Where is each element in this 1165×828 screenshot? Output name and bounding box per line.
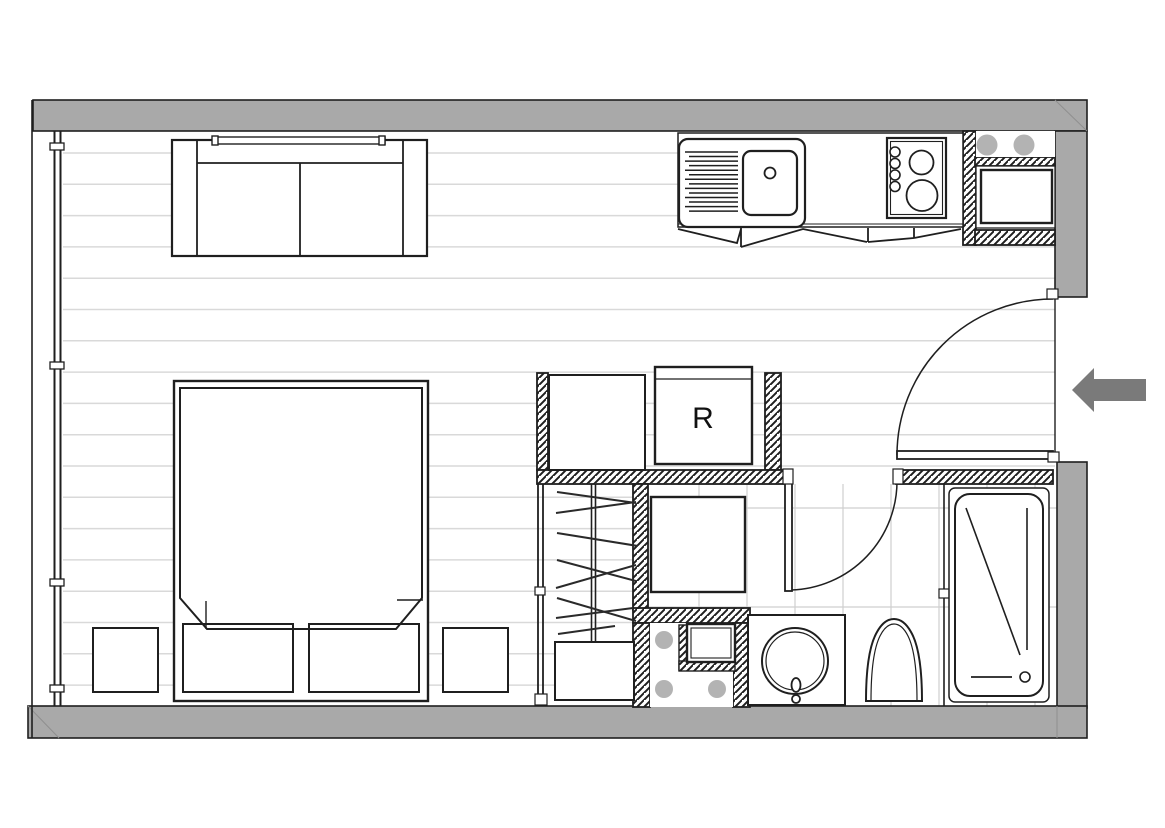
bed — [174, 381, 428, 701]
duvet — [180, 388, 422, 629]
sink-bowl — [743, 151, 797, 215]
refrigerator-label: R — [692, 402, 714, 435]
hob-burner-large — [907, 180, 938, 211]
shelf-bar — [213, 137, 385, 144]
floor-plan: R — [0, 0, 1165, 828]
entry-door-leaf — [897, 451, 1053, 459]
basin-faucet-knob — [792, 695, 800, 703]
bottom-wall — [28, 706, 1087, 738]
sink-drain — [765, 168, 776, 179]
bathroom-door-jamb-right — [893, 469, 903, 484]
washbasin — [748, 615, 845, 705]
sofa — [172, 140, 427, 256]
pipe-dot-2 — [655, 680, 673, 698]
basin-faucet — [792, 678, 801, 692]
bathroom-door-jamb-left — [783, 469, 793, 484]
midblock-wall-left — [537, 373, 548, 470]
wardrobe — [535, 484, 638, 706]
bathroom-top-wall-right — [896, 470, 1053, 484]
shaft-top-wall — [633, 608, 750, 623]
hangers — [556, 492, 638, 634]
midblock-wall-right — [765, 373, 781, 470]
floor-plan-canvas: R — [0, 0, 1165, 828]
cabinet — [549, 375, 645, 470]
right-wall-lower — [1057, 462, 1087, 708]
wardrobe-wall-joint — [535, 587, 545, 595]
duct-box-inner — [691, 628, 731, 658]
bathtub-rim — [955, 494, 1043, 696]
pipe-dot-3 — [708, 680, 726, 698]
kitchen-corner-wall-vertical — [963, 131, 976, 245]
kitchen-corner-wall-bottom — [975, 230, 1055, 245]
wardrobe-foot-joint — [535, 694, 547, 705]
appliance-dot-1 — [977, 135, 998, 156]
window-joints — [50, 143, 64, 692]
entry-door-arc — [897, 299, 1053, 455]
mid-block: R — [549, 367, 752, 470]
entry-door-jamb-top — [1047, 289, 1058, 299]
nightstand-left — [93, 628, 158, 692]
nightstand-right — [443, 628, 508, 692]
kitchen-corner-appliance — [976, 131, 1055, 228]
entry-door — [897, 289, 1059, 462]
appliance-top-edge — [975, 157, 1055, 166]
shower-tray — [651, 497, 745, 592]
bathtub-zone — [939, 484, 1049, 706]
hob-burner-small — [910, 151, 934, 175]
shelf-cap-left — [212, 136, 218, 145]
wall-shelf — [212, 136, 385, 145]
right-wall-upper — [1055, 131, 1087, 297]
shaft-left-wall — [633, 623, 650, 707]
bathroom-door-leaf — [785, 477, 792, 591]
counter-edge-zigzag — [678, 228, 961, 247]
bathtub-drain — [1020, 672, 1030, 682]
entry-door-jamb-bottom — [1048, 452, 1059, 462]
kitchen-sink-unit — [679, 139, 805, 227]
hob — [887, 138, 946, 218]
left-window-wall — [32, 100, 64, 738]
bathroom-top-wall-left — [537, 470, 788, 484]
entry-arrow — [1072, 368, 1146, 412]
appliance-dot-2 — [1014, 135, 1035, 156]
wardrobe-drawer-box — [555, 642, 634, 700]
top-wall — [33, 100, 1087, 131]
shelf-cap-right — [379, 136, 385, 145]
pipe-dot-1 — [655, 631, 673, 649]
built-in-appliance — [981, 170, 1052, 223]
service-shaft — [650, 623, 735, 707]
